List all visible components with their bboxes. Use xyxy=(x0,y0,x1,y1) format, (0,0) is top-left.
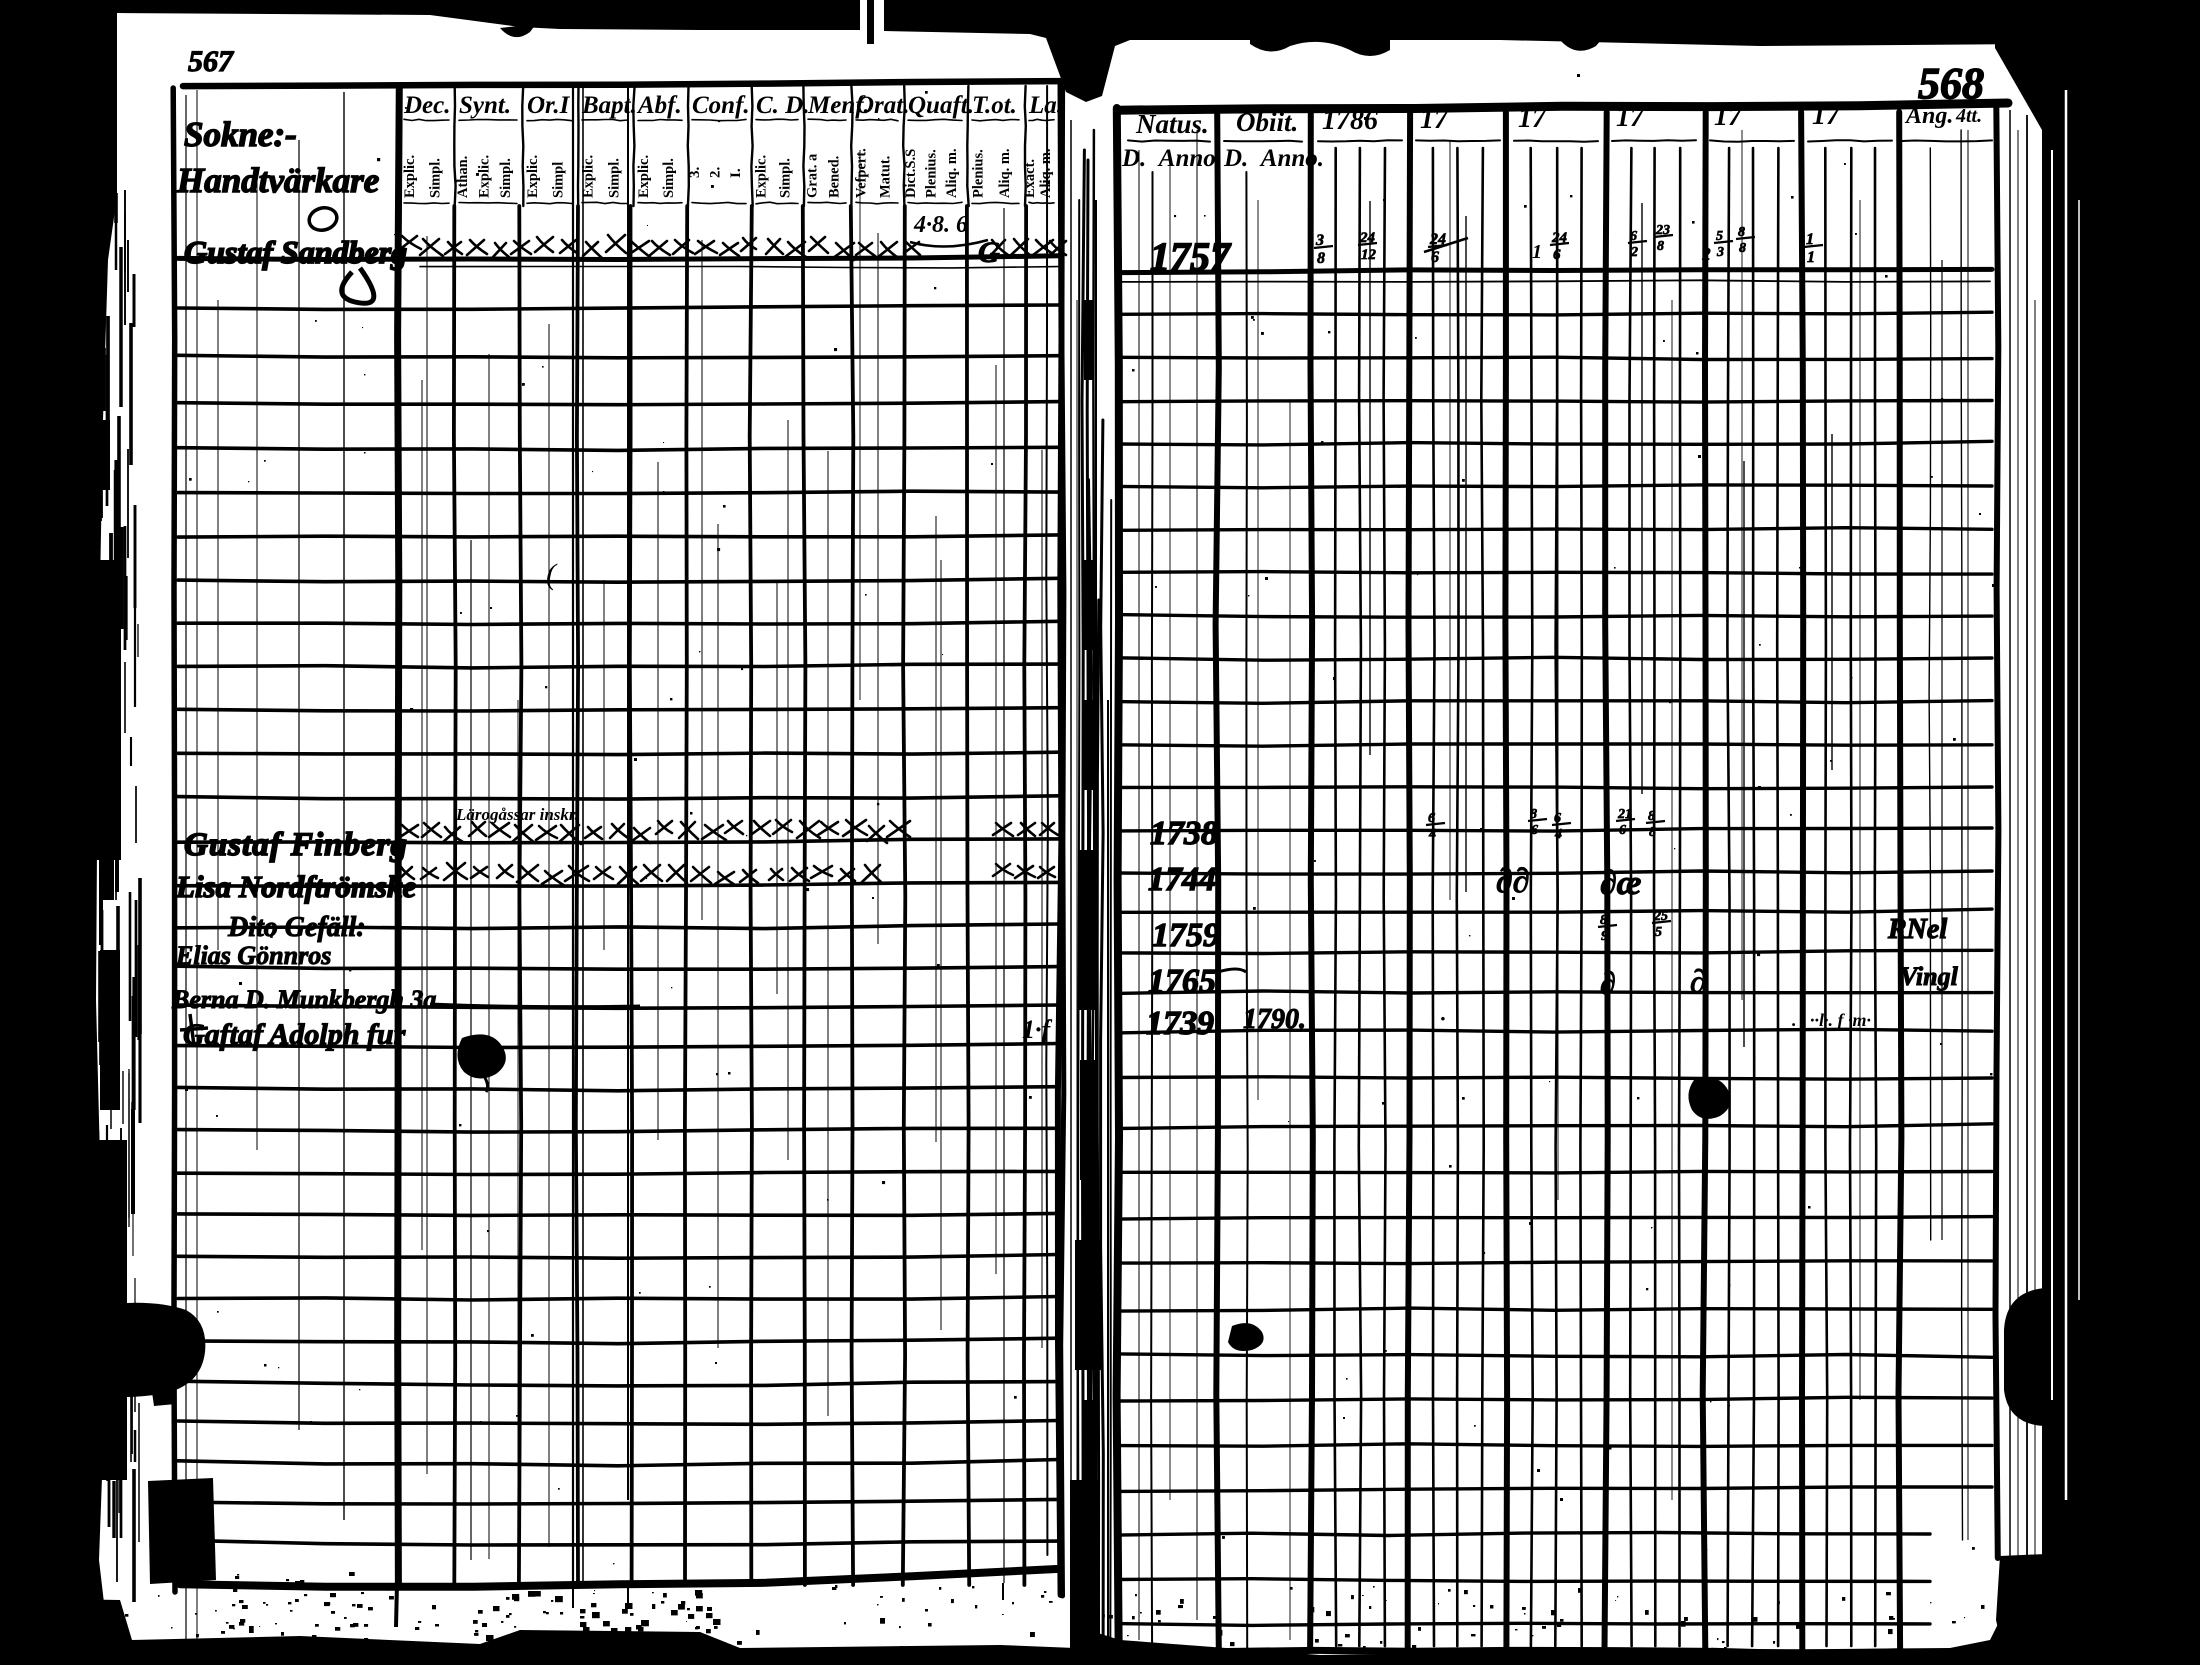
svg-text:2: 2 xyxy=(1630,245,1638,260)
svg-text:4: 4 xyxy=(1554,827,1562,842)
svg-text:17: 17 xyxy=(1420,104,1449,135)
svg-text:8: 8 xyxy=(1649,825,1656,840)
svg-text:4tt.: 4tt. xyxy=(1955,105,1982,127)
svg-text:1790.: 1790. xyxy=(1243,1004,1306,1035)
svg-text:9: 9 xyxy=(1601,929,1608,944)
svg-text:1: 1 xyxy=(1532,241,1542,263)
svg-text:Explic.: Explic. xyxy=(753,155,769,198)
svg-text:Matut.: Matut. xyxy=(877,156,893,198)
svg-text:Plenius.: Plenius. xyxy=(971,149,987,198)
svg-text:12: 12 xyxy=(1361,247,1377,263)
svg-text:T.ot.: T.ot. xyxy=(972,92,1017,119)
svg-text:3.: 3. xyxy=(687,167,703,179)
svg-text:Explic.: Explic. xyxy=(636,155,652,198)
svg-text:6: 6 xyxy=(1431,249,1439,266)
svg-text:Conf.: Conf. xyxy=(692,92,750,119)
svg-text:Gustaf Sandberg: Gustaf Sandberg xyxy=(184,234,407,270)
svg-text:Vefpert.: Vefpert. xyxy=(853,148,869,198)
svg-text:∂: ∂ xyxy=(1600,965,1616,1001)
svg-text:1·f: 1·f xyxy=(1022,1015,1053,1044)
svg-text:4: 4 xyxy=(1428,827,1436,842)
svg-text:Synt.: Synt. xyxy=(459,92,511,119)
svg-text:Athan.: Athan. xyxy=(455,156,471,198)
svg-text:I.: I. xyxy=(728,168,744,178)
svg-text:Simpl.: Simpl. xyxy=(428,158,444,198)
svg-text:Lisa Nordftrömske: Lisa Nordftrömske xyxy=(175,869,416,904)
svg-text:1739: 1739 xyxy=(1146,1005,1214,1042)
svg-text:∂∂: ∂∂ xyxy=(1496,863,1530,900)
svg-text:Bapt.: Bapt. xyxy=(581,92,637,119)
svg-text:Exact.: Exact. xyxy=(1022,159,1038,198)
svg-text:2: 2 xyxy=(1701,244,1711,264)
svg-text:1765: 1765 xyxy=(1148,963,1216,1000)
svg-text:Explic.: Explic. xyxy=(525,155,541,198)
svg-text:Simpl.: Simpl. xyxy=(661,158,677,198)
svg-text:1: 1 xyxy=(1807,249,1815,266)
svg-text:1738: 1738 xyxy=(1150,815,1218,852)
svg-text:C. D.: C. D. xyxy=(756,92,809,119)
svg-text:Quaft.: Quaft. xyxy=(908,92,974,119)
svg-text:Grat. a: Grat. a xyxy=(804,153,820,198)
svg-text:Dec.: Dec. xyxy=(403,92,451,119)
svg-text:Ang.: Ang. xyxy=(1904,103,1953,129)
svg-text:1757: 1757 xyxy=(1150,234,1232,279)
svg-text:Dito Gefäll:: Dito Gefäll: xyxy=(227,912,366,943)
svg-text:567: 567 xyxy=(188,45,234,78)
svg-text:17: 17 xyxy=(1812,100,1841,131)
svg-text:8: 8 xyxy=(1317,250,1325,267)
svg-text:D. Anno.: D. Anno. xyxy=(1121,145,1222,172)
svg-text:. . ··l·. f ·m·: . . ··l·. f ·m· xyxy=(1792,1010,1871,1030)
svg-text:Elias Gönnros: Elias Gönnros xyxy=(175,941,331,970)
svg-text:∂: ∂ xyxy=(1690,963,1706,999)
svg-text:RNel: RNel xyxy=(1887,914,1947,945)
svg-text:Simpl.: Simpl. xyxy=(606,158,622,198)
svg-text:1744: 1744 xyxy=(1148,861,1216,898)
svg-text:Explic.: Explic. xyxy=(476,155,492,198)
svg-text:2.: 2. xyxy=(707,167,723,179)
svg-text:3: 3 xyxy=(1716,245,1724,260)
svg-text:Orat.: Orat. xyxy=(856,92,909,119)
svg-text:6: 6 xyxy=(1553,247,1561,263)
svg-text:Berna D. Munkbergh 3a: Berna D. Munkbergh 3a xyxy=(171,985,436,1014)
svg-text:6: 6 xyxy=(1531,823,1538,838)
svg-text:Gaftaf Adolph fur: Gaftaf Adolph fur xyxy=(183,1018,406,1051)
svg-text:4·8. 6: 4·8. 6 xyxy=(913,212,968,238)
svg-text:Or.I: Or.I xyxy=(527,92,571,119)
svg-text:1759: 1759 xyxy=(1152,917,1220,954)
svg-text:Handtvärkare: Handtvärkare xyxy=(176,161,379,200)
svg-text:Sokne:-: Sokne:- xyxy=(184,115,297,154)
svg-text:1786: 1786 xyxy=(1322,105,1378,136)
svg-text:6: 6 xyxy=(1619,823,1626,838)
svg-text:17: 17 xyxy=(1714,101,1743,132)
svg-text:Vingl: Vingl xyxy=(1900,962,1959,991)
svg-text:17: 17 xyxy=(1518,103,1547,134)
svg-text:Simpl.: Simpl. xyxy=(777,158,793,198)
svg-text:Obiit.: Obiit. xyxy=(1236,107,1298,137)
svg-text:Explic.: Explic. xyxy=(402,155,418,198)
svg-text:Explic.: Explic. xyxy=(580,155,596,198)
svg-text:Abf.: Abf. xyxy=(636,92,682,119)
svg-text:Simpl.: Simpl. xyxy=(498,158,514,198)
svg-text:Gustaf Finberg: Gustaf Finberg xyxy=(184,827,408,863)
svg-text:Aliq. m.: Aliq. m. xyxy=(944,148,960,198)
svg-text:∂æ: ∂æ xyxy=(1600,865,1641,902)
svg-text:8: 8 xyxy=(1657,239,1664,254)
svg-text:Bened.: Bened. xyxy=(827,156,843,198)
svg-text:Aliq. m.: Aliq. m. xyxy=(997,148,1013,198)
svg-text:Natus.: Natus. xyxy=(1135,109,1209,139)
svg-text:·: · xyxy=(1440,1006,1446,1031)
svg-text:17: 17 xyxy=(1616,102,1645,133)
svg-text:Dict.S.S: Dict.S.S xyxy=(903,149,919,198)
svg-text:Plenius.: Plenius. xyxy=(923,149,939,198)
svg-text:5: 5 xyxy=(1655,925,1662,940)
svg-text:8: 8 xyxy=(1739,241,1746,256)
svg-text:Simpl: Simpl xyxy=(551,162,567,198)
svg-text:Lärogåssar inskr.: Lärogåssar inskr. xyxy=(455,805,579,824)
